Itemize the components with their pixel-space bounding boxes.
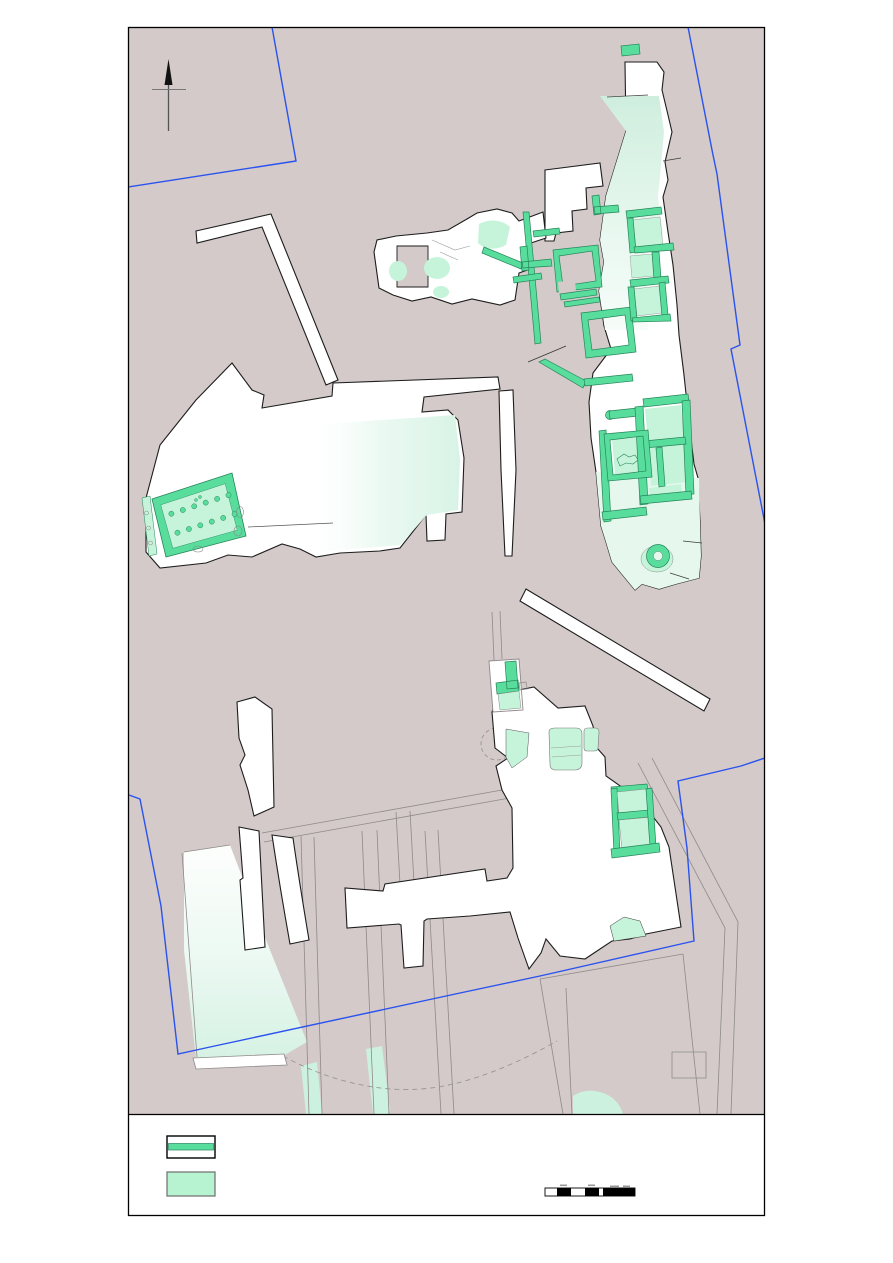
scale-bar-segment [557,1188,571,1196]
column-base [215,496,220,501]
mint-patch [433,286,449,298]
scale-bar-tick [623,1186,630,1188]
column-base [203,500,208,505]
scale-bar-segment [585,1188,599,1196]
column-base [195,499,198,502]
mint-patch [389,261,407,281]
feature-blob [584,728,599,751]
wall-segment [652,252,661,279]
site-plan-figure [0,0,893,1263]
column-base [221,515,226,520]
wall-segment [621,44,640,56]
column-base [186,526,191,531]
room-fill [498,691,521,710]
column-base [192,504,197,509]
scale-bar-tick [560,1185,567,1187]
legend-swatch-area [167,1172,215,1196]
room-fill [648,442,687,486]
column-base [209,519,214,524]
page [0,0,893,1263]
scale-bar-tick [588,1185,595,1187]
column-base [147,526,151,530]
mint-patch [424,257,450,279]
column-base [169,511,174,516]
column-base [226,493,231,498]
scale-bar-segment [603,1188,635,1196]
legend-panel [129,1115,765,1216]
column-base [175,530,180,535]
column-base [199,496,202,499]
map-area [128,27,765,1115]
legend-swatch-wall-stripe [169,1144,214,1151]
column-base [180,507,185,512]
round-feature-center [654,552,663,561]
room-fill [634,286,662,316]
room-fill [630,254,654,278]
column-base [149,541,153,545]
wall-gap [558,280,576,293]
column-base [198,523,203,528]
column-base [145,511,149,515]
scale-bar-tick [610,1186,619,1188]
feature-blob [549,728,582,770]
mint-patch [478,220,510,248]
